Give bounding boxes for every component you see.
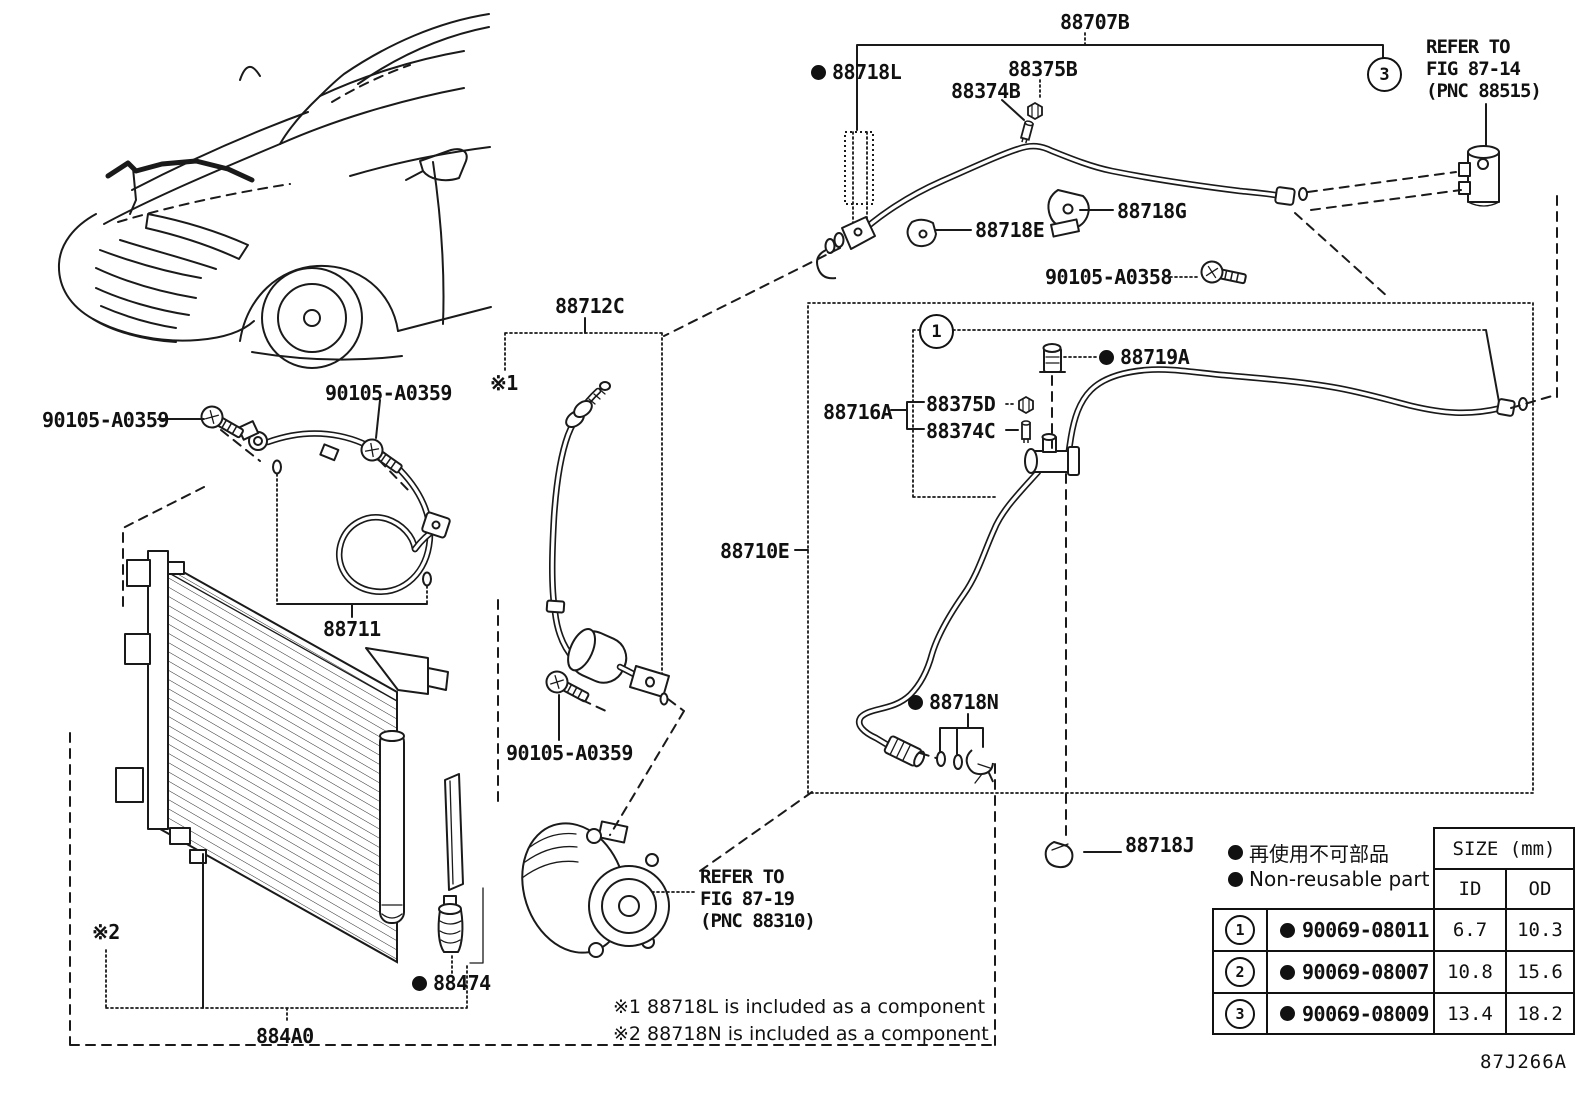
valve-88374c-part [1022, 421, 1030, 443]
condenser-assembly [116, 551, 483, 1008]
table-row-callout: 2 [1212, 950, 1268, 994]
part-label-88707b: 88707B [1060, 10, 1129, 34]
table-row-od: 10.3 [1505, 908, 1575, 952]
o-ring [661, 694, 668, 705]
o-ring [273, 461, 281, 474]
part-label-88718j: 88718J [1125, 833, 1194, 857]
discharge-hose-88712c [505, 318, 669, 705]
part-label-88375b: 88375B [1008, 57, 1077, 81]
table-row-callout: 3 [1212, 992, 1268, 1035]
car-illustration [59, 14, 491, 368]
footnote-1: ※1 88718L is included as a component [613, 996, 985, 1018]
non-reusable-dot-icon [1099, 350, 1114, 365]
nut-88375d-part [1019, 397, 1033, 413]
o-ring [954, 755, 962, 769]
part-label-88716a: 88716A [823, 400, 892, 424]
part-label-88718e: 88718E [975, 218, 1044, 242]
cap-88719a-part [1040, 344, 1065, 372]
non-reusable-dot-icon [1280, 965, 1295, 980]
table-row-id: 13.4 [1433, 992, 1507, 1035]
table-row-callout: 1 [1212, 908, 1268, 952]
valve-88374b-part [1020, 120, 1033, 143]
condenser-seal-strip [445, 774, 463, 890]
diagram-code: 87J266A [1480, 1051, 1567, 1073]
footnote-marker-1: ※1 [490, 371, 518, 395]
part-label-88719a: 88719A [1099, 345, 1189, 369]
suction-pipe-88707b [817, 33, 1383, 289]
o-ring [1299, 188, 1307, 200]
refer-fig-87-14-note: REFER TO FIG 87-14 (PNC 88515) [1426, 36, 1541, 102]
o-ring [937, 752, 945, 766]
part-label-88374c: 88374C [926, 419, 995, 443]
part-label-88375d: 88375D [926, 392, 995, 416]
part-label-88711: 88711 [323, 617, 381, 641]
non-reusable-dot-icon [412, 976, 427, 991]
table-row-id: 6.7 [1433, 908, 1507, 952]
table-row-part: 90069-08007 [1266, 950, 1435, 994]
part-label-90105-a0358: 90105-A0358 [1045, 265, 1172, 289]
part-label-884a0: 884A0 [256, 1024, 314, 1048]
part-label-88718g: 88718G [1117, 199, 1186, 223]
clip-88718n-part [967, 750, 993, 774]
clip-88718j-part [1046, 842, 1073, 867]
part-label-88718l: 88718L [811, 60, 901, 84]
non-reusable-dot-icon [1280, 923, 1295, 938]
non-reusable-dot-icon [908, 695, 923, 710]
part-label-90105-a0359-mid: 90105-A0359 [325, 381, 452, 405]
liquid-pipe-88710e [795, 303, 1533, 867]
non-reusable-dot-icon [811, 65, 826, 80]
size-table-od-header: OD [1505, 868, 1575, 910]
compressor [506, 810, 697, 966]
size-table-header: SIZE (mm) [1433, 827, 1575, 870]
non-reusable-dot-icon [1280, 1006, 1295, 1021]
part-label-88712c: 88712C [555, 294, 624, 318]
bolt-90105-a0358-part [1200, 260, 1248, 290]
part-label-88718n: 88718N [908, 690, 998, 714]
receiver-drier [380, 731, 404, 923]
callout-circle-3: 3 [1367, 57, 1402, 92]
part-label-88374b: 88374B [951, 79, 1020, 103]
part-label-88710e: 88710E [720, 539, 789, 563]
cap-88474-part [439, 896, 463, 952]
o-ring [835, 233, 844, 247]
table-row-od: 18.2 [1505, 992, 1575, 1035]
table-row-id: 10.8 [1433, 950, 1507, 994]
part-label-90105-a0359-low: 90105-A0359 [506, 741, 633, 765]
size-table-id-header: ID [1433, 868, 1507, 910]
expansion-valve [1459, 104, 1499, 206]
table-row-part: 90069-08009 [1266, 992, 1435, 1035]
part-label-90105-a0359-left: 90105-A0359 [42, 408, 169, 432]
nut-88375b-part [1028, 103, 1042, 119]
refer-fig-87-19-note: REFER TO FIG 87-19 (PNC 88310) [700, 866, 815, 932]
part-label-88474: 88474 [412, 971, 491, 995]
cushion-88718l-part [845, 132, 873, 204]
footnote-marker-2: ※2 [92, 920, 120, 944]
callout-circle-1: 1 [919, 314, 954, 349]
o-ring [423, 573, 431, 586]
parts-diagram-canvas: 88707B 88718L 88375B 88374B 88718E 88718… [0, 0, 1592, 1099]
size-table: SIZE (mm) ID OD 1 90069-08011 6.7 10.3 2… [1212, 827, 1575, 1035]
engine-harness-line [108, 161, 252, 180]
footnote-2: ※2 88718N is included as a component [613, 1023, 989, 1045]
table-row-od: 15.6 [1505, 950, 1575, 994]
suction-hose-88711 [238, 421, 450, 617]
table-row-part: 90069-08011 [1266, 908, 1435, 952]
